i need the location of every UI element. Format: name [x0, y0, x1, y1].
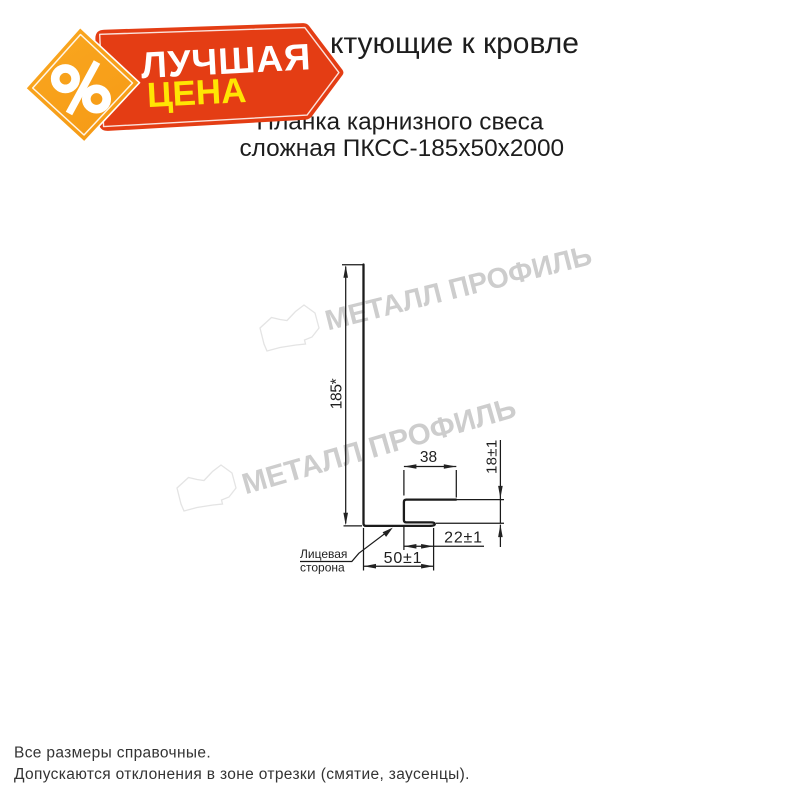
- svg-text:Лицевая: Лицевая: [300, 547, 347, 561]
- svg-text:50±1: 50±1: [384, 550, 423, 567]
- svg-text:ЦЕНА: ЦЕНА: [146, 71, 247, 115]
- svg-text:185*: 185*: [328, 378, 345, 409]
- svg-text:18±1: 18±1: [484, 440, 501, 474]
- svg-text:Допускаются отклонения в зоне: Допускаются отклонения в зоне отрезки (с…: [14, 766, 470, 783]
- svg-text:Все размеры справочные.: Все размеры справочные.: [14, 745, 211, 762]
- svg-text:38: 38: [420, 449, 437, 466]
- svg-text:МЕТАЛЛ ПРОФИЛЬ: МЕТАЛЛ ПРОФИЛЬ: [238, 391, 520, 501]
- svg-text:ктующие к кровле: ктующие к кровле: [330, 27, 579, 60]
- svg-text:сторона: сторона: [300, 561, 345, 575]
- svg-text:22±1: 22±1: [444, 530, 483, 547]
- svg-text:сложная ПКСС-185х50х2000: сложная ПКСС-185х50х2000: [239, 135, 564, 162]
